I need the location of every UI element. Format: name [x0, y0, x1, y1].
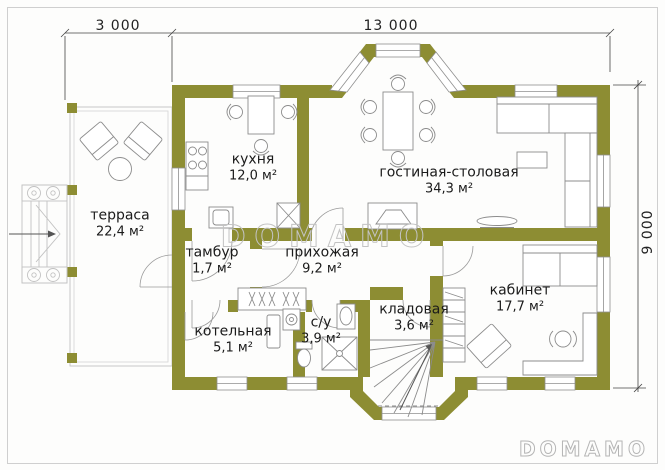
dimension-house-depth: 9 000: [640, 209, 656, 254]
tv-console: [477, 217, 517, 228]
office-chair: [550, 331, 577, 347]
dimension-terrace-width: 3 000: [95, 18, 140, 34]
room-label-office: кабинет 17,7 м²: [490, 281, 551, 316]
office-sofa: [523, 245, 597, 286]
room-label-pantry: кладовая 3,6 м²: [379, 300, 448, 335]
dimension-house-width: 13 000: [364, 18, 419, 34]
watermark-corner-logo: DOMAMO: [519, 437, 649, 461]
kitchen-table: [227, 96, 297, 155]
terrace-round-table: [109, 158, 132, 181]
room-label-boiler-room: котельная 5,1 м²: [194, 322, 271, 357]
coffee-table: [517, 152, 547, 168]
room-label-kitchen: кухня 12,0 м²: [229, 150, 277, 185]
room-label-living-dining: гостиная-столовая 34,3 м²: [379, 163, 518, 198]
terrace-armchairs: [79, 121, 162, 180]
room-label-bathroom: с/у 3,9 м²: [301, 313, 341, 348]
watermark-center: DOMAMO: [221, 220, 434, 255]
dining-table: [361, 75, 435, 167]
entry-stairs: [9, 185, 67, 283]
office-armchair: [466, 323, 511, 368]
stove: [186, 142, 208, 190]
hallway-wardrobe: [238, 288, 306, 310]
entry-arrow: [9, 231, 56, 238]
room-label-terrace: терраса 22,4 м²: [90, 206, 149, 241]
floor-plan-page: 3 000 13 000 9 000 терраса 22,4 м² кухня…: [0, 0, 665, 470]
